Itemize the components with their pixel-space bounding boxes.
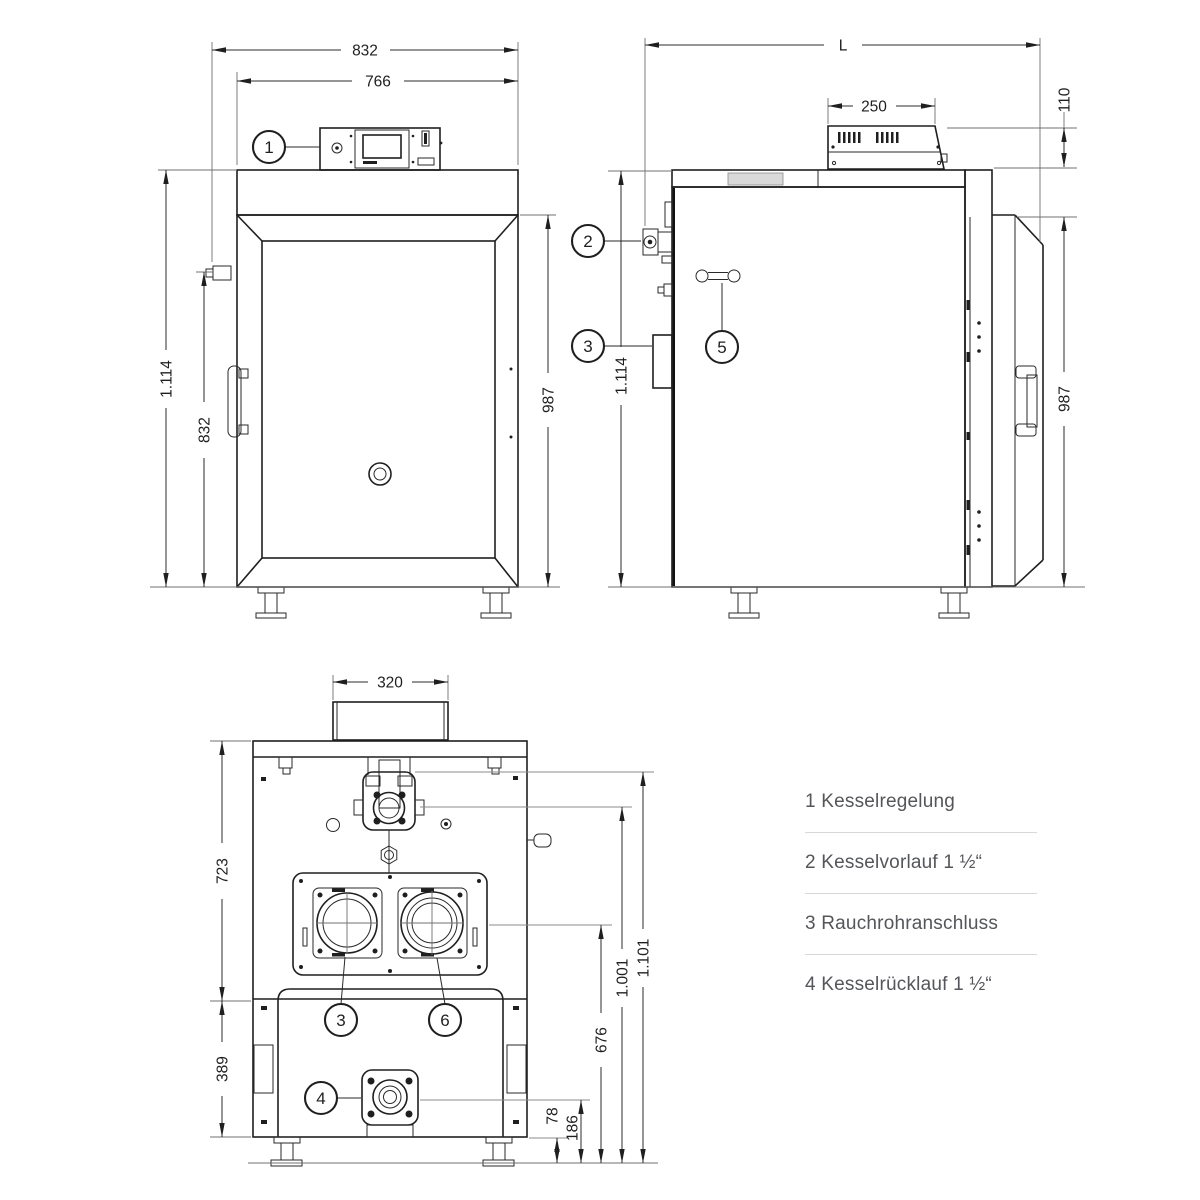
- callout-kesselregelung: 1: [253, 131, 320, 163]
- legend-item-kesselvorlauf: 2 Kesselvorlauf 1 ½“: [805, 833, 1037, 894]
- dim-back-flue-height: 676: [594, 925, 611, 1163]
- callout-3-number-side: 3: [583, 337, 592, 356]
- dim-side-length: L: [645, 38, 1040, 243]
- dim-front-total-height: 1.114: [158, 170, 237, 587]
- legend-item-text: 3 Rauchrohranschluss: [805, 913, 998, 935]
- dim-label-1114-front: 1.114: [159, 360, 176, 398]
- dim-label-250: 250: [861, 99, 887, 116]
- front-feet: [256, 587, 511, 618]
- dim-side-body-height: 987: [1017, 217, 1077, 587]
- dim-back-upper-height: 723: [210, 741, 251, 1001]
- dim-label-723: 723: [215, 858, 232, 884]
- front-boiler-outline: [237, 170, 518, 587]
- dim-label-78: 78: [545, 1107, 562, 1124]
- side-boiler-outline: [665, 170, 965, 587]
- back-view: 3 6 4 320: [210, 675, 658, 1167]
- back-port-plate: [293, 873, 487, 975]
- dim-back-duct-width: 320: [333, 675, 448, 701]
- dim-label-110: 110: [1057, 87, 1074, 112]
- callout-kesselruecklauf: 4: [305, 1082, 361, 1114]
- front-left-fitting: [206, 266, 231, 280]
- dim-side-total-height: 1.114: [608, 171, 672, 587]
- legend: 1 Kesselregelung 2 Kesselvorlauf 1 ½“ 3 …: [805, 772, 1037, 1015]
- dim-label-L: L: [839, 38, 848, 55]
- callout-handle: 5: [706, 283, 738, 363]
- callout-3-number-back: 3: [336, 1011, 345, 1030]
- callout-1-number: 1: [264, 138, 273, 157]
- dim-back-lower-height: 389: [210, 1001, 251, 1137]
- legend-item-text: 4 Kesselrücklauf 1 ½“: [805, 974, 992, 996]
- boiler-control-panel: [320, 128, 442, 170]
- dim-label-1101: 1.101: [636, 939, 653, 978]
- dim-side-panel-height: 110: [947, 87, 1077, 168]
- dim-front-body-height: 987: [520, 215, 558, 587]
- side-feet: [729, 587, 969, 618]
- legend-item-text: 1 Kesselregelung: [805, 791, 955, 813]
- dim-label-832-left: 832: [197, 417, 214, 443]
- front-view: 1 832 766 1.114: [150, 42, 560, 618]
- back-boiler-outline: [253, 741, 527, 1137]
- technical-drawing: 1 832 766 1.114: [0, 0, 1200, 1200]
- back-feet: [271, 1137, 514, 1166]
- callout-4-number: 4: [316, 1089, 325, 1108]
- dim-back-foot-height: 78: [545, 1107, 562, 1163]
- callout-rauchrohr-side: 3: [572, 330, 652, 362]
- callout-2-number: 2: [583, 232, 592, 251]
- side-control-panel: [828, 126, 947, 169]
- dim-label-186: 186: [565, 1115, 582, 1141]
- legend-item-rauchrohranschluss: 3 Rauchrohranschluss: [805, 894, 1037, 955]
- back-lower-section: [253, 989, 527, 1137]
- side-door-profile: [965, 170, 1043, 587]
- callout-port-6: 6: [429, 958, 461, 1036]
- dim-label-832-top: 832: [352, 43, 378, 60]
- dim-label-389: 389: [215, 1056, 232, 1082]
- dim-side-panel-width: 250: [828, 98, 935, 124]
- dim-back-top-height: 1.101: [636, 772, 653, 1163]
- dim-front-door-height: 832: [196, 272, 214, 587]
- legend-item-text: 2 Kesselvorlauf 1 ½“: [805, 852, 982, 874]
- back-side-stub: [527, 834, 551, 847]
- side-vorlauf-fitting: [643, 229, 672, 296]
- legend-item-kesselregelung: 1 Kesselregelung: [805, 772, 1037, 833]
- callout-6-number: 6: [440, 1011, 449, 1030]
- front-door-knob: [369, 368, 513, 486]
- dim-label-320: 320: [377, 675, 403, 692]
- side-top-handle: [696, 270, 740, 282]
- front-door-handle: [228, 366, 248, 437]
- dim-back-vorlauf-height: 1.001: [615, 807, 632, 1163]
- side-flue-box: [653, 335, 672, 388]
- legend-item-kesselruecklauf: 4 Kesselrücklauf 1 ½“: [805, 955, 1037, 1015]
- dim-label-676: 676: [594, 1027, 611, 1053]
- back-flue-duct: [333, 702, 448, 740]
- back-vorlauf-assembly: [327, 757, 452, 873]
- callout-rauchrohr-back: 3: [325, 957, 357, 1036]
- side-view: 2 3 5 L 250: [572, 38, 1085, 619]
- back-ruecklauf-fitting: [362, 1070, 418, 1137]
- callout-5-number: 5: [717, 338, 726, 357]
- dim-label-766: 766: [365, 74, 391, 91]
- dim-label-1114-side: 1.114: [614, 357, 631, 395]
- dim-label-1001: 1.001: [615, 959, 632, 998]
- dim-label-987-front: 987: [541, 387, 558, 413]
- callout-kesselvorlauf: 2: [572, 225, 641, 257]
- dim-back-return-height: 186: [565, 1100, 582, 1163]
- dim-label-987-side: 987: [1057, 386, 1074, 412]
